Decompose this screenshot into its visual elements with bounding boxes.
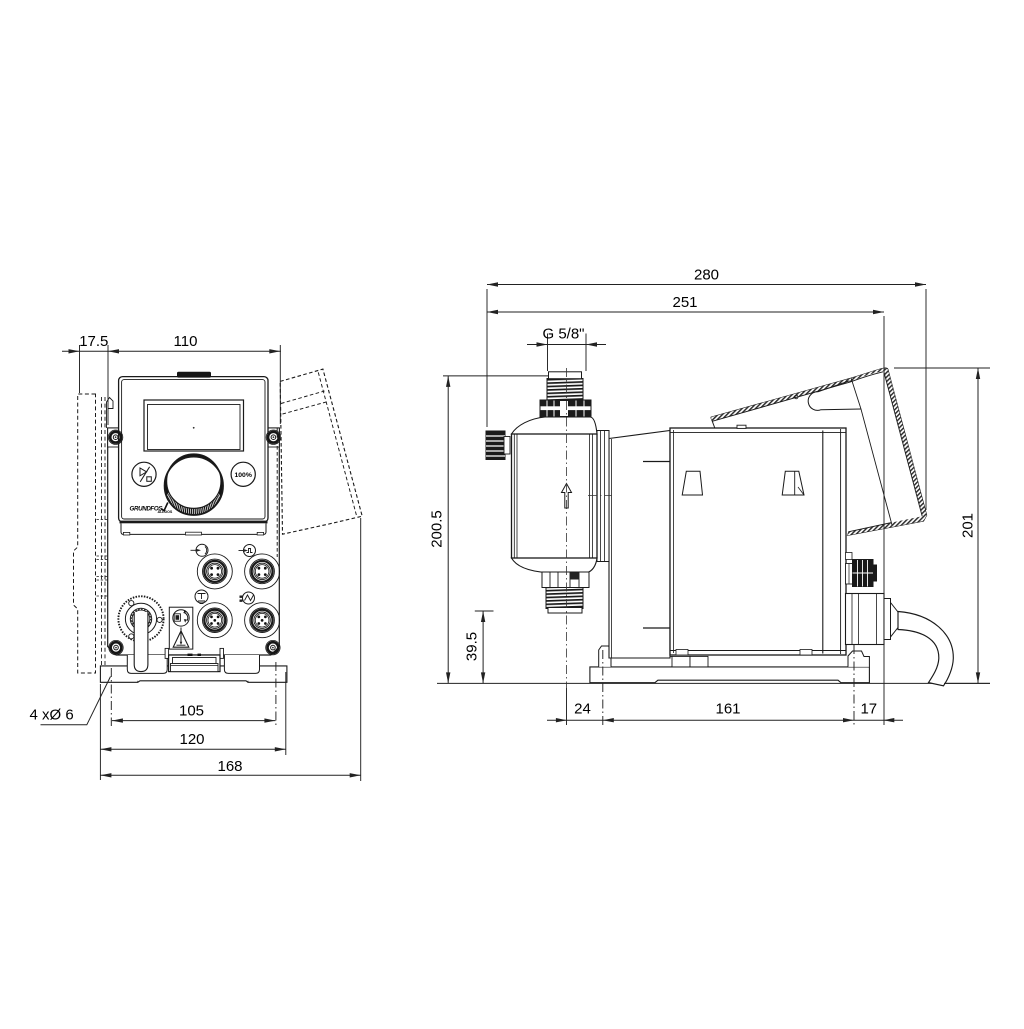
svg-text:201: 201 (960, 513, 977, 538)
svg-text:110: 110 (174, 333, 198, 350)
svg-text:ALLDOS: ALLDOS (158, 510, 173, 514)
svg-text:280: 280 (694, 267, 719, 284)
svg-text:200.5: 200.5 (429, 510, 446, 548)
svg-text:168: 168 (217, 758, 242, 775)
svg-text:24: 24 (574, 701, 591, 718)
svg-text:105: 105 (179, 703, 204, 720)
svg-text:G 5/8": G 5/8" (542, 326, 584, 343)
svg-text:100%: 100% (235, 472, 252, 479)
svg-text:120: 120 (179, 731, 204, 748)
svg-text:251: 251 (672, 294, 697, 311)
svg-text:161: 161 (715, 701, 740, 718)
svg-text:4 xØ 6: 4 xØ 6 (30, 707, 74, 724)
svg-text:17.5: 17.5 (79, 333, 108, 350)
svg-text:39.5: 39.5 (464, 632, 481, 661)
svg-text:17: 17 (860, 701, 877, 718)
